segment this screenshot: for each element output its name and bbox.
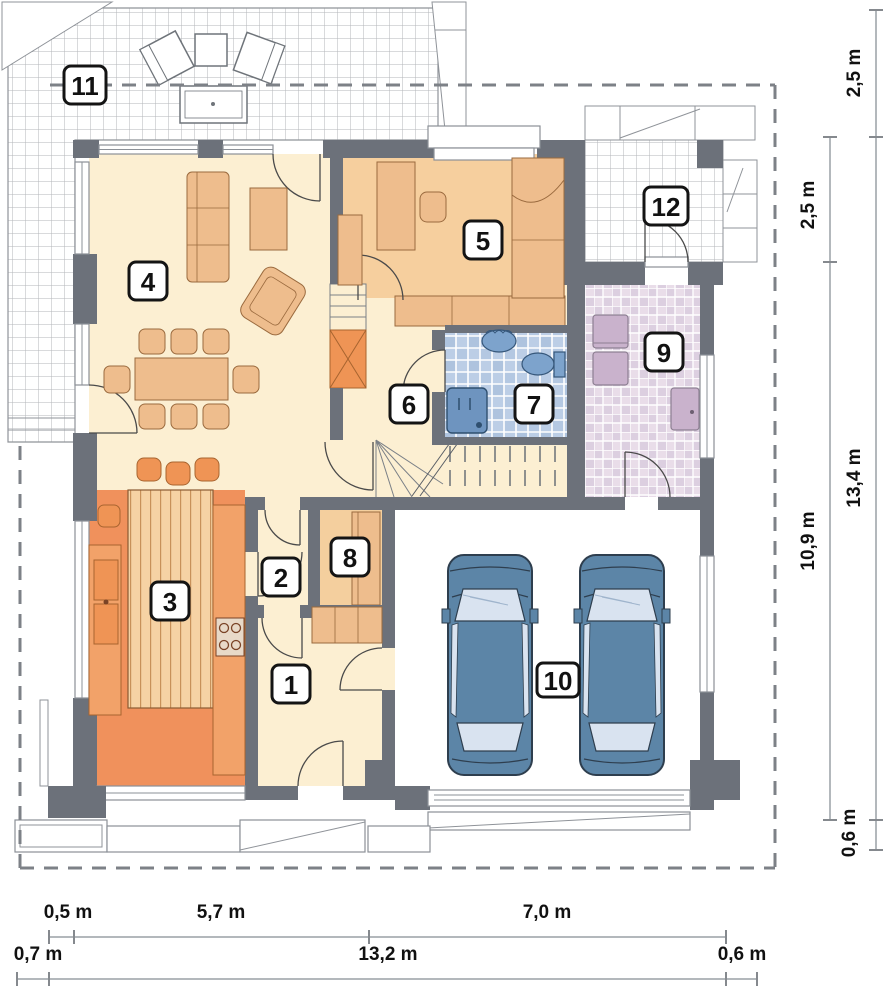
room-badge-12: 12 [644,187,688,225]
garage-floor [395,497,714,797]
wardrobe-room5 [395,296,565,326]
kitchen-sink [94,604,118,644]
terrace-side-table [195,34,227,66]
room-number: 9 [657,338,671,368]
dining-chair [171,329,197,354]
coffee-table [250,188,287,250]
room-badge-4: 4 [129,262,167,300]
room-badge-11: 11 [64,66,106,104]
terrace-12 [585,106,757,262]
room-badge-7: 7 [515,385,553,423]
room-badge-5: 5 [464,221,502,259]
dining-table [135,358,228,400]
dim-bottom1-1: 0,5 m [44,902,93,923]
stove [216,618,244,656]
car [442,555,538,775]
dining-chair [139,329,165,354]
desk [377,162,415,250]
dim-bottom1-3: 7,0 m [523,902,572,923]
room-badge-3: 3 [151,582,189,620]
room-number: 6 [402,390,416,420]
desk-chair [420,192,446,222]
room-number: 11 [71,71,99,101]
hall-closet [312,607,382,643]
room-badge-9: 9 [645,333,683,371]
dining-chair [104,366,130,393]
stool [98,505,120,527]
room-number: 8 [343,543,357,573]
dining-chair [139,404,165,429]
dining-chair [203,404,229,429]
dim-bottom1-2: 5,7 m [197,902,246,923]
bar-stool [195,458,219,481]
tv-cabinet [338,215,362,285]
dim-right-outer-2: 13,4 m [844,448,865,507]
room-number: 5 [476,226,490,256]
dining-chair [233,366,259,393]
sofa [187,172,229,282]
room-number: 2 [274,563,288,593]
room-badge-2: 2 [262,558,300,596]
room-badge-10: 10 [537,663,579,697]
room-number: 12 [652,192,681,222]
floor-plan-canvas: 1 2 3 4 5 6 7 8 [0,0,896,1000]
room-number: 10 [544,666,573,696]
room-number: 1 [284,670,298,700]
room-badge-8: 8 [331,538,369,576]
kitchen-sink [94,560,118,600]
room-number: 3 [163,587,177,617]
terrace-door-landing [428,126,540,148]
dim-right-inner-1: 2,5 m [798,181,819,230]
room-number: 7 [527,390,541,420]
car [574,555,670,775]
laundry-machine [593,352,628,385]
floor-plan-page: 1 2 3 4 5 6 7 8 [0,0,896,1000]
bar-stool [166,462,190,485]
dim-bottom2-3: 0,6 m [718,944,767,965]
dim-right-inner-2: 10,9 m [798,511,819,570]
bed [512,158,564,298]
room-badge-6: 6 [390,385,428,423]
dim-bottom2-2: 13,2 m [358,944,417,965]
dining-chair [171,404,197,429]
boiler [671,388,699,430]
dim-bottom2-1: 0,7 m [14,944,63,965]
room-badge-1: 1 [272,665,310,703]
dining-chair [203,329,229,354]
bar-stool [137,458,161,481]
terrace-table [180,86,247,123]
garage-door [428,790,690,806]
dim-right-outer-1: 2,5 m [844,49,865,98]
bathroom-sink [482,330,516,352]
toilet [522,353,554,375]
room-number: 4 [141,267,156,297]
dim-right-outer-3: 0,6 m [839,809,860,858]
